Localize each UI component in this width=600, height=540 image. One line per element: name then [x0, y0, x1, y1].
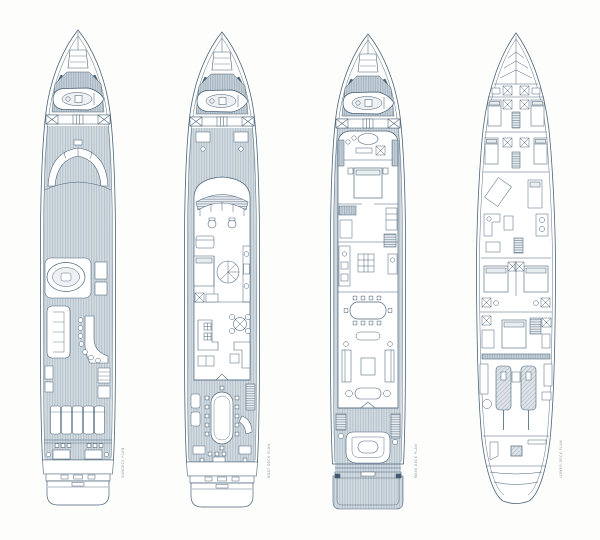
swim-platform: [333, 472, 403, 509]
deck-label-main: MAIN DECK PLAN: [414, 444, 418, 478]
jacuzzi: [45, 258, 91, 298]
u-sofa: [47, 306, 70, 358]
deck-label-boat: BOAT DECK PLAN: [267, 444, 271, 478]
sun-pads: [51, 406, 105, 434]
curved-settee: [346, 432, 390, 463]
deck-label-sun: SUNDECK PLAN: [121, 447, 125, 478]
lower-deck-plan: [477, 33, 556, 504]
deck-label-lower: LOWER DECK PLAN: [559, 440, 563, 478]
pilot-chair: [228, 220, 236, 228]
main-deck-plan: [331, 34, 406, 509]
aft-stair: [391, 414, 400, 438]
aft-stairs: [246, 384, 255, 410]
spiral-stair: [217, 261, 239, 283]
sun-deck-plan: [41, 30, 116, 505]
boat-deck-plan: [185, 32, 260, 507]
pilot-chair: [208, 220, 216, 228]
deck-plans-svg: SUNDECK PLAN BOAT DECK PLAN MAIN DECK PL…: [0, 0, 600, 540]
yacht-ga-drawing: SUNDECK PLAN BOAT DECK PLAN MAIN DECK PL…: [0, 0, 600, 540]
